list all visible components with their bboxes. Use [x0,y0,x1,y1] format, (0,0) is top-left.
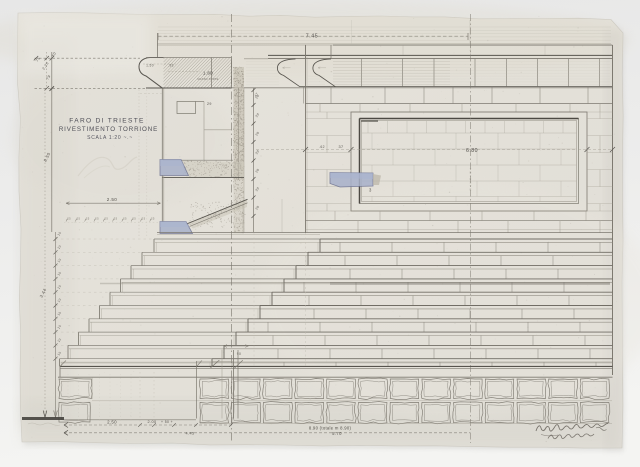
svg-text:6.80: 6.80 [466,148,478,154]
svg-text:MASSO FORTE: MASSO FORTE [197,77,218,81]
svg-text:90: 90 [237,352,242,356]
svg-text:FARO DI TRIESTE: FARO DI TRIESTE [69,118,144,125]
svg-text:RIVESTIMENTO TORRIONE: RIVESTIMENTO TORRIONE [59,126,158,133]
svg-text:4.45: 4.45 [186,432,195,436]
svg-text:7.45: 7.45 [306,34,319,40]
svg-text:29: 29 [207,102,212,106]
svg-text:37: 37 [338,145,343,149]
svg-text:5.70: 5.70 [332,431,342,436]
svg-text:3: 3 [369,188,372,193]
svg-text:2.50: 2.50 [107,197,118,202]
svg-text:SCALA 1:20 ~.~: SCALA 1:20 ~.~ [87,135,133,141]
svg-text:2.50: 2.50 [107,419,117,424]
svg-text:1.60: 1.60 [203,71,213,76]
svg-text:+ 50 +: + 50 + [161,420,173,424]
svg-text:8.90 (totale m 8.90): 8.90 (totale m 8.90) [309,425,352,430]
svg-text:.62: .62 [319,145,325,149]
